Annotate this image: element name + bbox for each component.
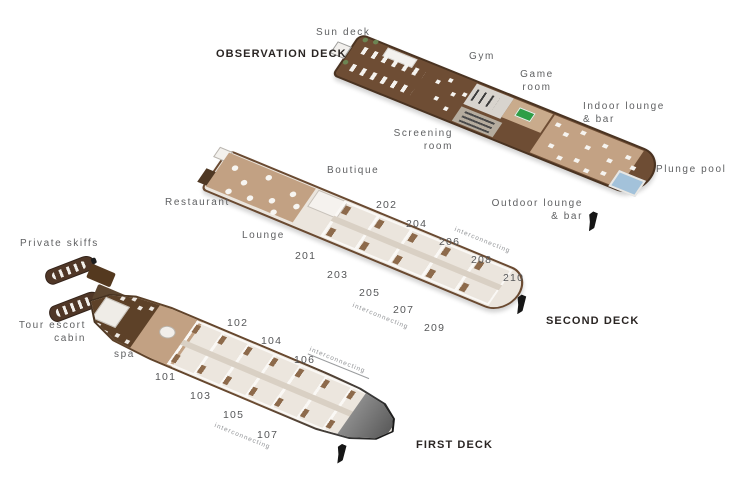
label-screening-room: Screening room [385, 127, 453, 153]
label-sun-deck: Sun deck [316, 26, 371, 39]
first-deck-title: FIRST DECK [416, 439, 493, 451]
label-lounge: Lounge [242, 229, 285, 242]
cabin-number-210: 210 [503, 272, 524, 284]
cabin-number-209: 209 [424, 322, 445, 334]
cabin-number-105: 105 [223, 409, 244, 421]
cabin-number-202: 202 [376, 199, 397, 211]
label-game-room: Game room [510, 68, 564, 94]
cabin-number-208: 208 [471, 254, 492, 266]
stern-pennant [580, 211, 603, 232]
cabin-number-103: 103 [190, 390, 211, 402]
cabin-number-204: 204 [406, 218, 427, 230]
observation-deck-title: OBSERVATION DECK [216, 48, 347, 60]
label-spa: spa [114, 348, 135, 361]
cabin-number-102: 102 [227, 317, 248, 329]
pool-table [514, 107, 535, 122]
cabin-number-201: 201 [295, 250, 316, 262]
cabin-number-104: 104 [261, 335, 282, 347]
label-restaurant: Restaurant [165, 196, 230, 209]
label-tour-escort-cabin: Tour escort cabin [16, 319, 86, 345]
cabin-number-205: 205 [359, 287, 380, 299]
label-private-skiffs: Private skiffs [20, 237, 99, 250]
label-outdoor-lounge-bar: Outdoor lounge & bar [484, 197, 583, 223]
second-deck-title: SECOND DECK [546, 315, 639, 327]
cabin-number-203: 203 [327, 269, 348, 281]
skiff-seats [51, 260, 87, 280]
cabin-number-206: 206 [439, 236, 460, 248]
label-boutique: Boutique [327, 164, 379, 177]
label-gym: Gym [469, 50, 495, 63]
gym-equipment [470, 89, 500, 109]
cabin-number-101: 101 [155, 371, 176, 383]
label-plunge-pool: Plunge pool [656, 163, 726, 176]
cabin-number-207: 207 [393, 304, 414, 316]
label-indoor-lounge-bar: Indoor lounge & bar [583, 100, 665, 126]
ship-deck-plan-diagram: Sun deck OBSERVATION DECK Gym Game room … [0, 0, 750, 500]
stern-pennant [329, 443, 352, 464]
